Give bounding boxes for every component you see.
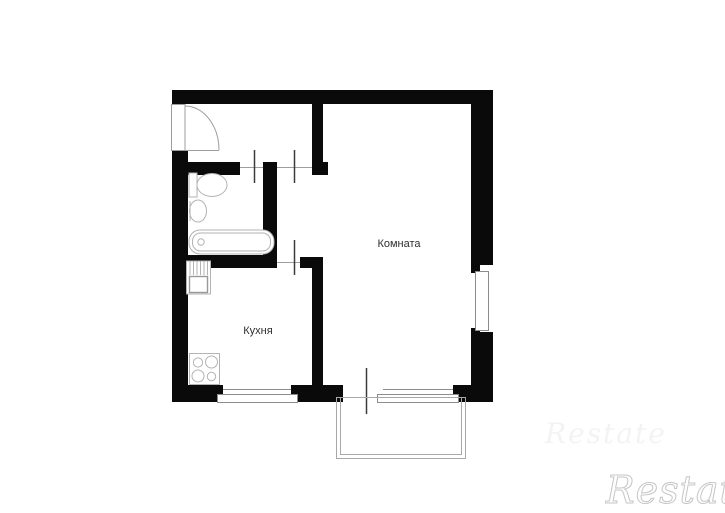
kitchen-sink-icon bbox=[187, 261, 211, 294]
faint-watermark: Restate bbox=[544, 417, 667, 450]
bathtub-drain bbox=[198, 239, 204, 245]
toilet-bowl bbox=[197, 174, 227, 197]
entrance-door-opening bbox=[172, 105, 186, 151]
washbasin-bowl bbox=[190, 200, 207, 222]
side-window-frame bbox=[476, 272, 489, 331]
stove-burner bbox=[192, 370, 204, 382]
toilet-icon bbox=[189, 173, 227, 197]
wall-left bbox=[172, 151, 188, 402]
room-window bbox=[378, 385, 459, 403]
washbasin-icon bbox=[190, 200, 207, 222]
wall-divider-lower-foot bbox=[300, 257, 312, 268]
room-window-sill bbox=[378, 395, 459, 403]
floor-plan-page: Restate bbox=[0, 0, 725, 513]
wall-right bbox=[471, 104, 493, 402]
kitchen-label: Кухня bbox=[243, 325, 272, 337]
stove-icon bbox=[190, 354, 220, 385]
wall-divider-upper-foot bbox=[312, 162, 328, 175]
stove-burner bbox=[207, 372, 215, 380]
side-window bbox=[471, 265, 493, 332]
bathtub-icon bbox=[189, 230, 274, 254]
kitchen-window bbox=[218, 385, 298, 403]
stove-burner bbox=[193, 358, 202, 367]
watermark-logo: Restate bbox=[605, 468, 725, 512]
floor-plan-drawing: Restate bbox=[0, 0, 725, 513]
wall-divider-lower bbox=[312, 257, 323, 402]
kitchen-window-sill bbox=[218, 395, 298, 403]
stove-burner bbox=[206, 356, 218, 368]
wall-top bbox=[172, 90, 493, 104]
kitchen-sink-basin bbox=[190, 277, 208, 293]
toilet-tank bbox=[189, 173, 197, 197]
room-label: Комната bbox=[377, 238, 421, 250]
